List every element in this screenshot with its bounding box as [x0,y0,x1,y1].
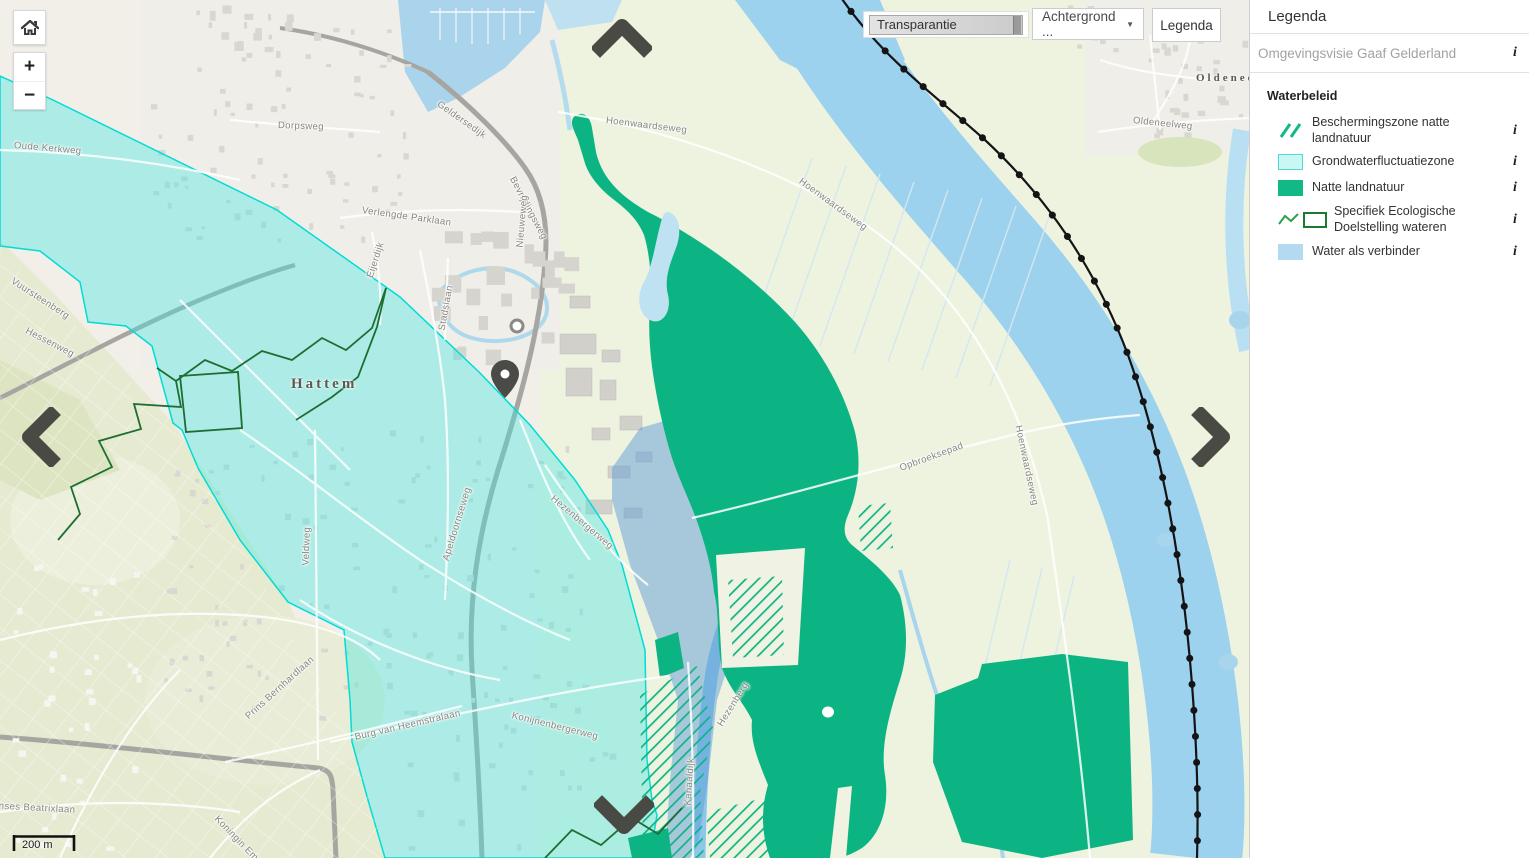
home-icon [21,20,39,36]
legend-panel: Legenda Omgevingsvisie Gaaf Gelderland i… [1249,0,1529,858]
pan-down-arrow[interactable] [594,789,654,849]
outline-box-swatch-icon [1303,212,1327,228]
map-application: Oude KerkwegDorpswegGeldersedijkBevrijdi… [0,0,1529,858]
legend-body: Waterbeleid Beschermingszone natte landn… [1250,73,1529,265]
home-button[interactable] [13,10,46,45]
zoom-out-button[interactable]: − [14,82,45,110]
green-hatch-swatch-icon [1278,122,1308,139]
legend-item-label: Specifiek Ecologische Doelstelling water… [1330,204,1509,235]
transparency-slider-handle[interactable] [1013,16,1021,34]
background-select[interactable]: Achtergrond ... ▼ [1032,8,1144,40]
road-node-circle [511,320,523,332]
map-viewport[interactable]: Oude KerkwegDorpswegGeldersedijkBevrijdi… [0,0,1249,858]
green-fill-swatch-icon [1278,180,1308,196]
legend-toggle-button[interactable]: Legenda [1152,8,1221,42]
scale-label: 200 m [22,839,53,851]
transparency-label: Transparantie [877,17,957,32]
legend-section-title: Waterbeleid [1267,89,1529,103]
transparency-slider[interactable]: Transparantie [869,15,1023,35]
legend-panel-title: Legenda [1250,0,1529,34]
info-icon[interactable]: i [1509,123,1521,139]
info-icon[interactable]: i [1509,180,1521,196]
cyan-fill-swatch-icon [1278,154,1308,170]
info-icon[interactable]: i [1509,154,1521,170]
transparency-widget: Transparantie [863,11,1029,38]
pan-up-arrow[interactable] [592,4,652,64]
chevron-down-icon: ▼ [1126,20,1134,29]
blue-fill-swatch-icon [1278,244,1308,260]
legend-item-label: Water als verbinder [1308,244,1509,260]
legend-item-label: Grondwaterfluctuatiezone [1308,154,1509,170]
legend-item-natte-landnatuur: Natte landnatuur i [1250,175,1529,201]
plan-row: Omgevingsvisie Gaaf Gelderland i [1250,34,1529,73]
plan-name: Omgevingsvisie Gaaf Gelderland [1258,46,1509,61]
legend-item-grondwaterfluctuatiezone: Grondwaterfluctuatiezone i [1250,149,1529,175]
legend-item-water-als-verbinder: Water als verbinder i [1250,239,1529,265]
legend-item-beschermingszone: Beschermingszone natte landnatuur i [1250,112,1529,149]
info-icon[interactable]: i [1509,212,1521,228]
zoom-control: + − [13,52,46,110]
legend-item-specifiek-ecologische-doelstelling: Specifiek Ecologische Doelstelling water… [1250,201,1529,238]
pan-left-arrow[interactable] [7,407,67,467]
zoom-in-button[interactable]: + [14,53,45,82]
background-select-label: Achtergrond ... [1042,9,1126,39]
info-icon[interactable]: i [1509,45,1521,61]
basemap-canvas [0,0,1249,858]
info-icon[interactable]: i [1509,244,1521,260]
pan-right-arrow[interactable] [1185,407,1245,467]
legend-item-label: Natte landnatuur [1308,180,1509,196]
legend-item-label: Beschermingszone natte landnatuur [1308,115,1509,146]
zigzag-line-swatch-icon [1278,211,1330,228]
